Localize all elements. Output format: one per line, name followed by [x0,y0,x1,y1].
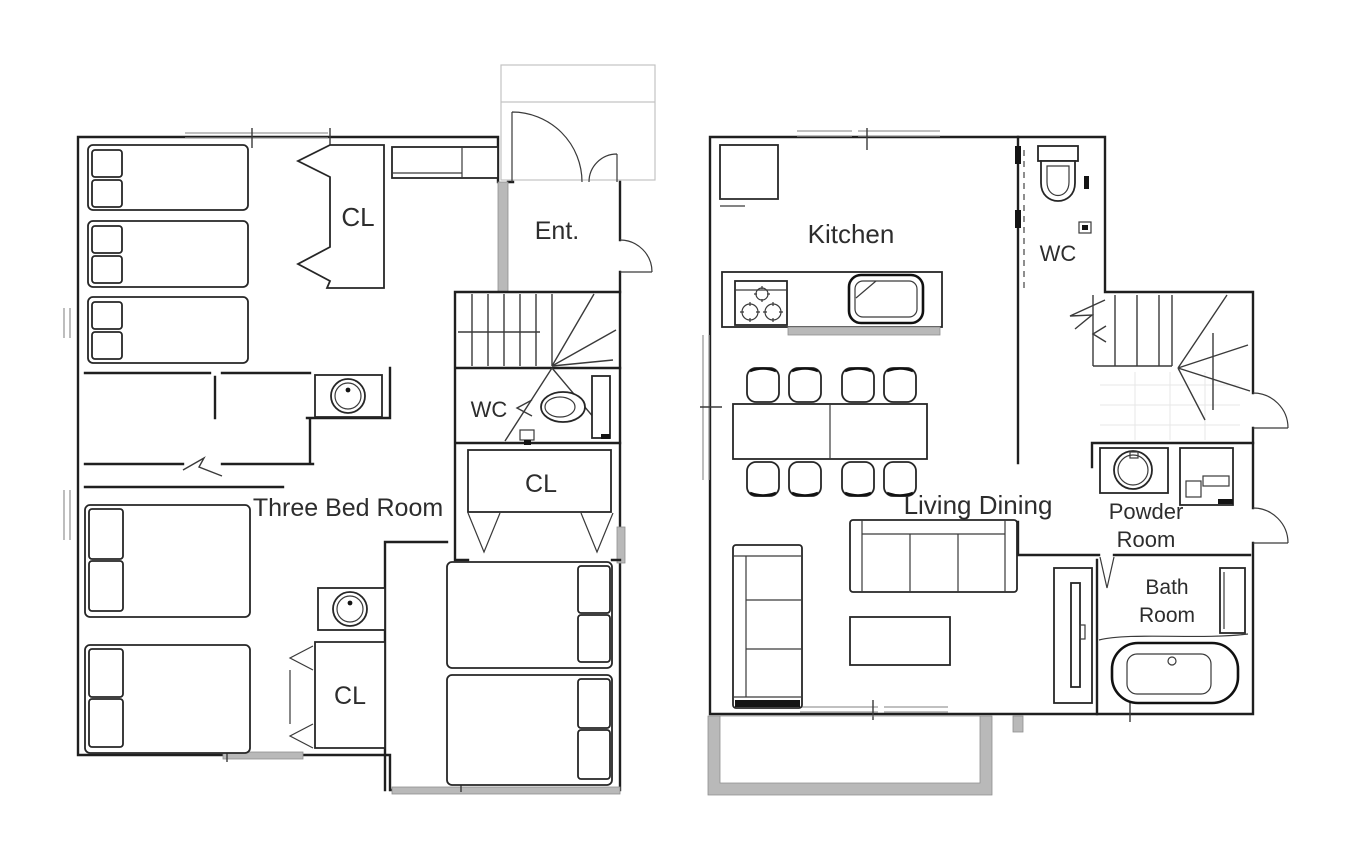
kitchen-counter [722,272,942,335]
dining-table [733,404,927,459]
bed-single [88,145,248,210]
staircase-right [1070,295,1250,440]
wall-strip [498,182,508,292]
bath-counter [1220,568,1245,633]
floor-plan-right: Kitchen WC Living Dining Powder Room Bat… [700,128,1288,795]
washing-machine-icon [1180,448,1233,505]
wall-strip [617,527,625,563]
entry-door-icon [512,112,617,182]
coffee-table [850,617,950,665]
room-label-closet-top: CL [341,202,374,232]
refrigerator-icon [720,145,778,206]
washbasin-icon [318,588,385,630]
floor-plan-drawing: CL Ent. WC CL Three Bed Room CL [0,0,1350,868]
tv-board [1054,568,1092,703]
room-label-kitchen: Kitchen [808,219,895,249]
room-label-powder-line1: Powder [1109,499,1184,524]
room-label-entrance: Ent. [535,217,579,245]
room-label-closet-middle: CL [525,470,557,498]
stove-icon [735,281,787,325]
washbasin-icon [315,375,382,417]
bath-floor-edge [1099,634,1248,640]
floor-plan-page: CL Ent. WC CL Three Bed Room CL [0,0,1350,868]
toilet-icon [1038,146,1091,233]
bath-door-icon [1100,557,1114,588]
sofa-three-seat [850,520,1017,592]
bathtub-icon [1112,643,1238,703]
room-label-living-dining: Living Dining [904,490,1053,520]
bed-single [88,297,248,363]
balcony-door-icon [1253,393,1288,543]
bed-double [85,645,250,753]
balcony [708,716,992,795]
room-label-powder-line2: Room [1117,527,1176,552]
wall-strip [392,787,620,794]
side-door-icon [620,240,652,272]
room-label-bath-line1: Bath [1145,576,1188,599]
entrance-porch [501,65,655,180]
bed-double [447,562,612,668]
sofa-side [733,545,802,708]
washbasin-icon [1100,448,1168,493]
room-label-closet-bottom: CL [334,682,366,710]
kitchen-sink-icon [849,275,923,323]
room-label-wc-left: WC [471,397,508,422]
room-label-wc-right: WC [1040,241,1077,266]
bed-double [447,675,612,785]
bed-double [85,505,250,617]
folding-door-icon [183,458,222,476]
stair-break-arrow-icon [1070,300,1106,342]
room-label-bath-line2: Room [1139,604,1195,627]
room-label-bedroom: Three Bed Room [253,494,443,522]
bed-single [88,221,248,287]
shoe-cabinet [392,147,498,178]
floor-plan-left: CL Ent. WC CL Three Bed Room CL [64,65,655,794]
wall-strip [1013,716,1023,732]
toilet-icon [520,376,610,445]
closet-middle [468,450,613,552]
